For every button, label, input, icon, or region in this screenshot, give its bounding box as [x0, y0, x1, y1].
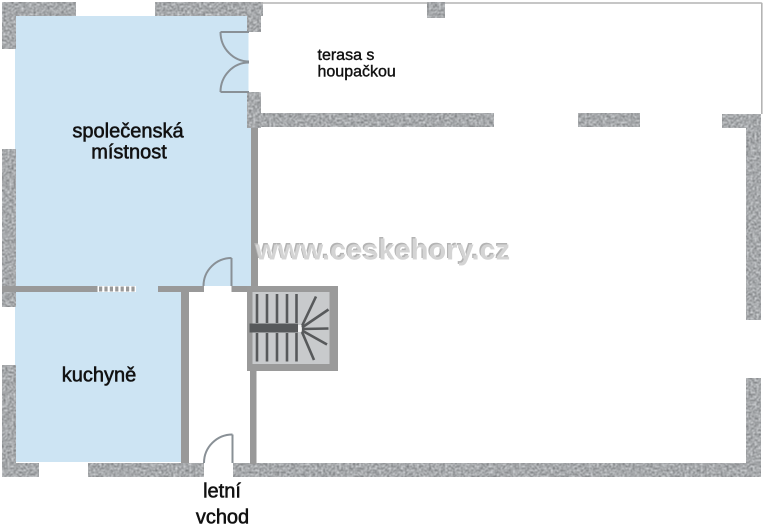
svg-text:vchod: vchod: [196, 507, 249, 529]
svg-text:letní: letní: [203, 481, 241, 503]
svg-text:houpačkou: houpačkou: [318, 63, 396, 80]
svg-text:společenská: společenská: [72, 121, 184, 143]
svg-text:terasa s: terasa s: [318, 47, 375, 64]
svg-text:místnost: místnost: [91, 142, 167, 164]
svg-text:kuchyně: kuchyně: [62, 365, 137, 387]
svg-text:www.ceskehory.cz: www.ceskehory.cz: [254, 234, 510, 266]
